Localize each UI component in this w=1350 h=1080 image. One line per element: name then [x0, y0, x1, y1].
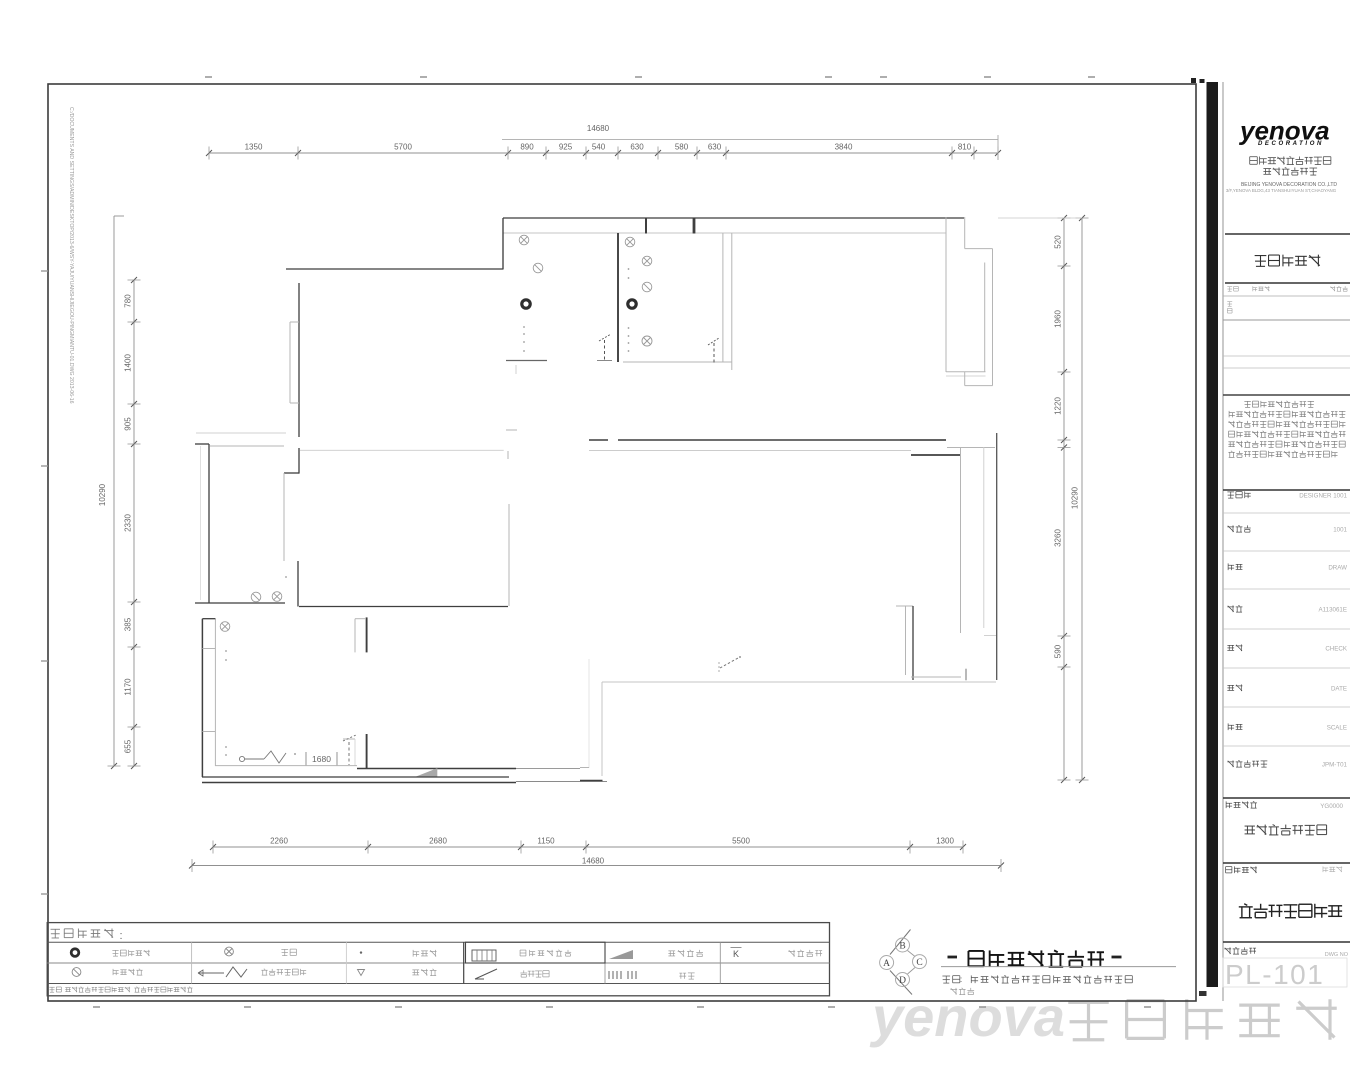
svg-text:630: 630 — [708, 143, 722, 152]
svg-text:1350: 1350 — [245, 143, 263, 152]
svg-text:1001: 1001 — [1333, 527, 1347, 534]
svg-text:630: 630 — [630, 143, 644, 152]
svg-text:10290: 10290 — [1071, 486, 1080, 509]
svg-text:1300: 1300 — [936, 837, 954, 846]
svg-text:580: 580 — [675, 143, 689, 152]
svg-text:C:/DOCUMENTS AND SETTINGS/ADMI: C:/DOCUMENTS AND SETTINGS/ADMIN/DESKTOP/… — [68, 107, 74, 404]
svg-text::: : — [119, 930, 122, 942]
svg-text:5700: 5700 — [394, 143, 412, 152]
svg-text:SCALE: SCALE — [1327, 725, 1347, 732]
svg-text:905: 905 — [124, 417, 133, 431]
svg-text:14680: 14680 — [587, 124, 610, 133]
svg-text:540: 540 — [592, 143, 606, 152]
svg-text:890: 890 — [520, 143, 534, 152]
svg-text:14680: 14680 — [582, 857, 605, 866]
svg-text:DWG NO: DWG NO — [1325, 952, 1349, 958]
svg-text:A113061E: A113061E — [1319, 607, 1347, 614]
svg-text:925: 925 — [559, 143, 573, 152]
svg-text::: : — [960, 974, 962, 984]
svg-text:3840: 3840 — [835, 143, 853, 152]
svg-text:1960: 1960 — [1054, 310, 1063, 328]
svg-text:D: D — [899, 976, 906, 986]
svg-text:3/F,YENOVA BLDG,43 TIANSHUIYUA: 3/F,YENOVA BLDG,43 TIANSHUIYUAN ST,CHAOY… — [1226, 188, 1337, 193]
svg-text:A: A — [883, 959, 890, 969]
svg-text:385: 385 — [124, 617, 133, 631]
svg-text:1220: 1220 — [1054, 397, 1063, 415]
svg-text:DRAW: DRAW — [1328, 565, 1347, 572]
svg-text:DESIGNER 1001: DESIGNER 1001 — [1299, 493, 1347, 500]
svg-text:5500: 5500 — [732, 837, 750, 846]
svg-text:PL-101: PL-101 — [1225, 959, 1324, 990]
svg-text:590: 590 — [1054, 644, 1063, 658]
svg-text:1680: 1680 — [312, 754, 331, 764]
svg-text:780: 780 — [124, 294, 133, 308]
svg-text:C: C — [916, 958, 922, 968]
svg-text:JPM-T01: JPM-T01 — [1322, 762, 1348, 769]
svg-text:B: B — [899, 941, 905, 951]
svg-text:10290: 10290 — [98, 483, 107, 506]
svg-text:3260: 3260 — [1054, 529, 1063, 547]
svg-text:CHECK: CHECK — [1325, 646, 1348, 653]
svg-text:810: 810 — [958, 143, 972, 152]
svg-text:1400: 1400 — [124, 354, 133, 372]
svg-text:2680: 2680 — [429, 837, 447, 846]
svg-text:1170: 1170 — [124, 678, 133, 696]
svg-text:DECORATION: DECORATION — [1258, 141, 1324, 147]
svg-text:655: 655 — [124, 739, 133, 753]
svg-text:DATE: DATE — [1331, 686, 1347, 693]
svg-text:1150: 1150 — [537, 837, 555, 846]
svg-text:2330: 2330 — [124, 514, 133, 532]
svg-text:YG0000: YG0000 — [1320, 803, 1343, 810]
svg-text:K: K — [733, 949, 739, 959]
svg-text:yenova: yenova — [869, 985, 1065, 1048]
svg-text:520: 520 — [1054, 235, 1063, 249]
svg-text:2260: 2260 — [270, 837, 288, 846]
